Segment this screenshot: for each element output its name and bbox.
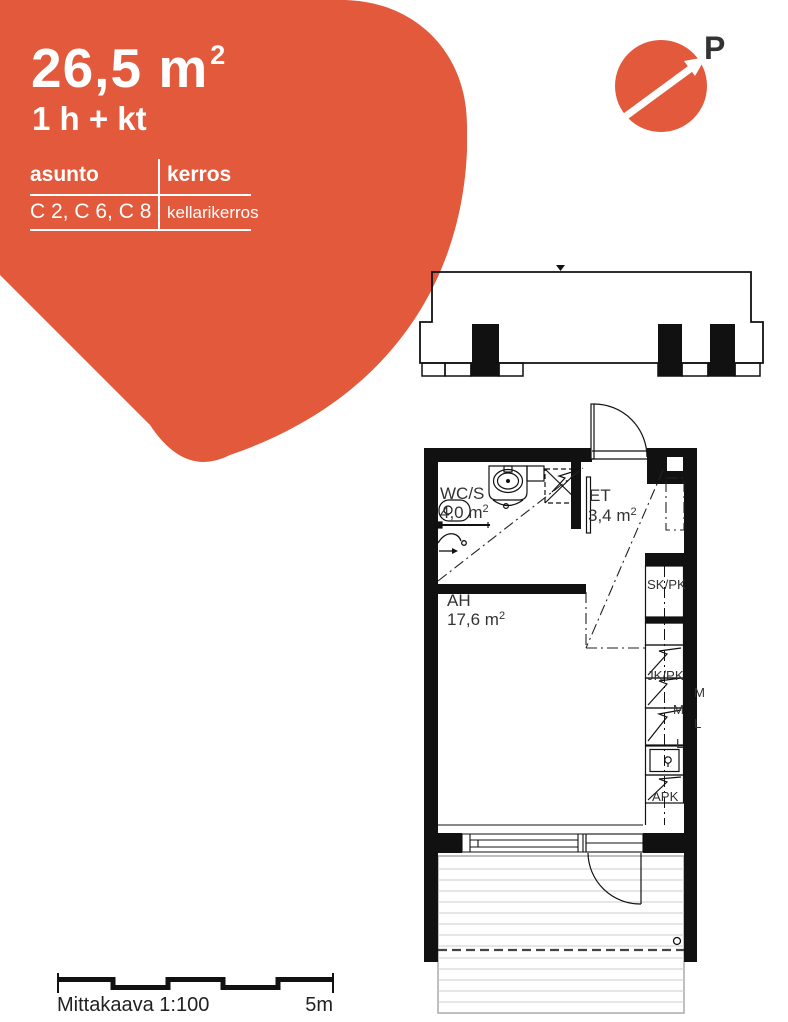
floor-value: kellarikerros (158, 196, 251, 229)
label-jk-pk: JK/PK (647, 668, 684, 683)
site-unit-markers (472, 324, 735, 363)
apartment-header: asunto (30, 159, 158, 194)
room-name-wcs: WC/S (440, 484, 484, 503)
label-l-outer: L (694, 716, 701, 731)
scale-bar-steps (58, 980, 333, 988)
terrace-drain (674, 938, 681, 945)
site-balcony-row (422, 363, 760, 376)
washbasin (489, 466, 527, 508)
north-label: P (704, 30, 725, 66)
bathroom-shelf (527, 466, 544, 481)
sink-faucet (665, 757, 671, 767)
label-sk-pk: SK/PK (647, 577, 686, 592)
label-apk: APK (652, 789, 679, 804)
entry-door-swing (594, 404, 647, 457)
floor-drain-hose (438, 534, 466, 554)
kitchen-top-wall (645, 553, 697, 566)
floor-header: kerros (158, 159, 251, 194)
label-m-inner: M (673, 702, 684, 717)
outer-wall-right (684, 448, 697, 962)
outer-wall-top-left-segment (424, 448, 592, 462)
scale-label: Mittakaava 1:100 (57, 994, 209, 1016)
bottom-wall-right-segment (643, 833, 697, 853)
apartment-value: C 2, C 6, C 8 (30, 196, 158, 229)
label-m-outer: M (694, 685, 705, 700)
scale-end-label: 5m (305, 994, 333, 1016)
north-indicator: P (615, 30, 725, 132)
kitchen-column (646, 566, 684, 825)
duct-niche (667, 457, 683, 471)
reserved-space-outline (666, 478, 684, 530)
label-l-inner: L (676, 736, 683, 751)
table-divider (158, 159, 160, 231)
site-north-tick (556, 265, 565, 271)
plan-artwork: P (0, 0, 788, 1022)
floor-plan-page: P (0, 0, 788, 1022)
entry-door (591, 404, 647, 459)
site-plan (420, 265, 763, 376)
towel-rail (436, 522, 490, 528)
unit-area: 26,5 m2 (31, 36, 224, 100)
window-band (438, 825, 643, 852)
room-labels: WC/S 4,0 m2 ET 3,4 m2 AH 17,6 m2 (440, 484, 637, 629)
table-value-row: C 2, C 6, C 8 kellarikerros (30, 194, 251, 231)
bottom-wall-left-segment (424, 833, 462, 853)
room-area-et: 3,4 m2 (588, 506, 637, 525)
scale-bar: Mittakaava 1:100 5m (57, 973, 333, 1016)
room-area-wcs: 4,0 m2 (440, 503, 489, 522)
terrace (438, 853, 684, 1013)
unit-type: 1 h + kt (32, 100, 147, 138)
table-header-row: asunto kerros (30, 159, 251, 194)
room-name-et: ET (589, 486, 611, 505)
room-name-ah: AH (447, 591, 471, 610)
area-exponent: 2 (210, 40, 226, 70)
unit-table: asunto kerros C 2, C 6, C 8 kellarikerro… (30, 159, 251, 231)
room-area-ah: 17,6 m2 (447, 610, 505, 629)
